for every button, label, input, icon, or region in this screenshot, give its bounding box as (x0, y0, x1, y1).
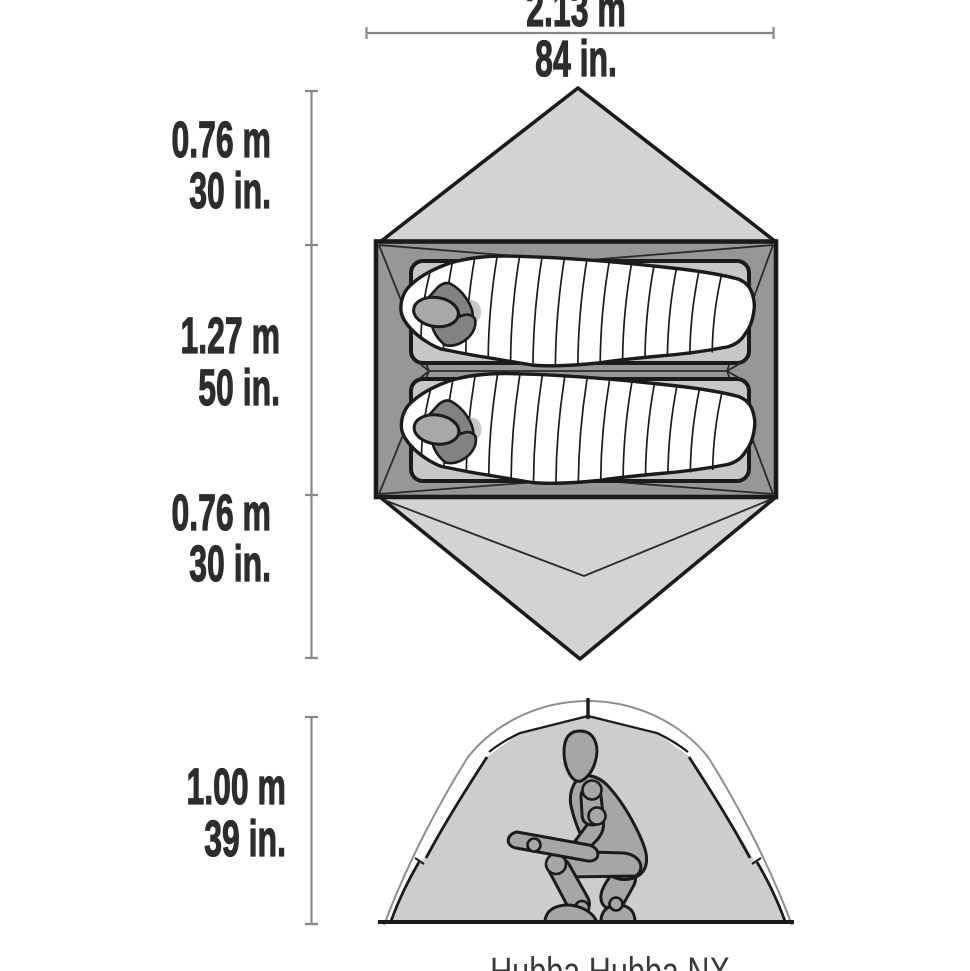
svg-text:84 in.: 84 in. (535, 30, 617, 88)
svg-text:50 in.: 50 in. (198, 359, 280, 417)
svg-text:1.00 m: 1.00 m (186, 758, 286, 816)
svg-text:Hubba Hubba NX: Hubba Hubba NX (490, 949, 730, 971)
svg-text:39 in.: 39 in. (204, 810, 286, 868)
svg-text:30 in.: 30 in. (189, 535, 271, 593)
svg-text:0.76 m: 0.76 m (171, 484, 271, 542)
svg-text:30 in.: 30 in. (189, 162, 271, 220)
svg-text:1.27 m: 1.27 m (181, 307, 281, 365)
svg-text:0.76 m: 0.76 m (171, 111, 271, 169)
